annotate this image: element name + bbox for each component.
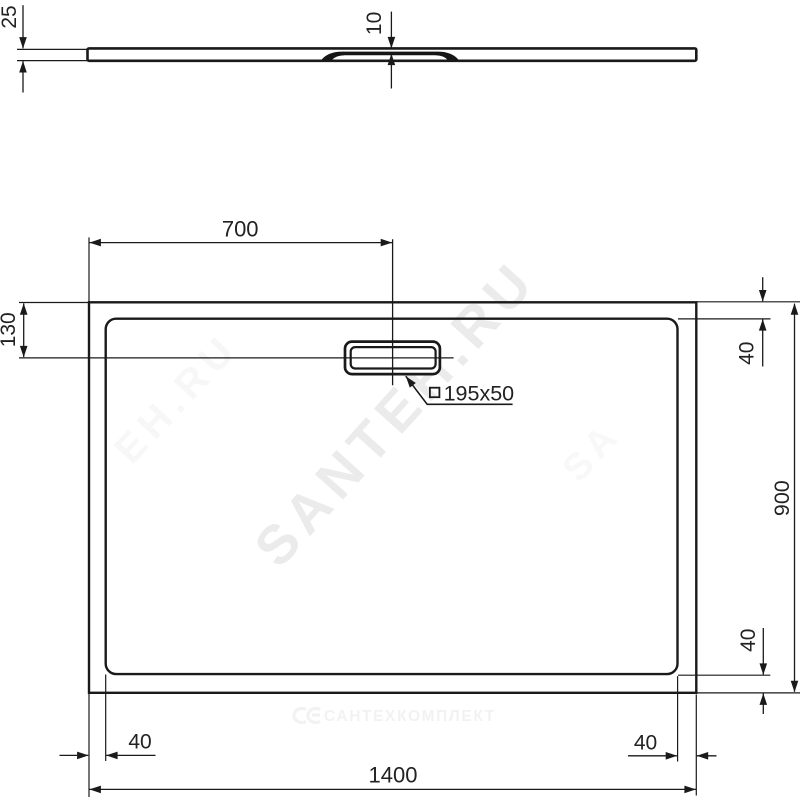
svg-text:10: 10 bbox=[363, 12, 386, 35]
svg-text:40: 40 bbox=[634, 732, 657, 755]
svg-text:25: 25 bbox=[0, 5, 21, 28]
svg-text:40: 40 bbox=[736, 342, 759, 365]
svg-text:700: 700 bbox=[222, 216, 259, 241]
svg-text:900: 900 bbox=[770, 480, 794, 516]
svg-text:130: 130 bbox=[0, 312, 20, 347]
svg-text:40: 40 bbox=[128, 730, 151, 753]
svg-text:САНТЕХКОМПЛЕКТ: САНТЕХКОМПЛЕКТ bbox=[324, 708, 496, 725]
svg-text:195x50: 195x50 bbox=[444, 381, 515, 405]
svg-text:40: 40 bbox=[737, 629, 760, 652]
svg-text:1400: 1400 bbox=[369, 762, 418, 787]
